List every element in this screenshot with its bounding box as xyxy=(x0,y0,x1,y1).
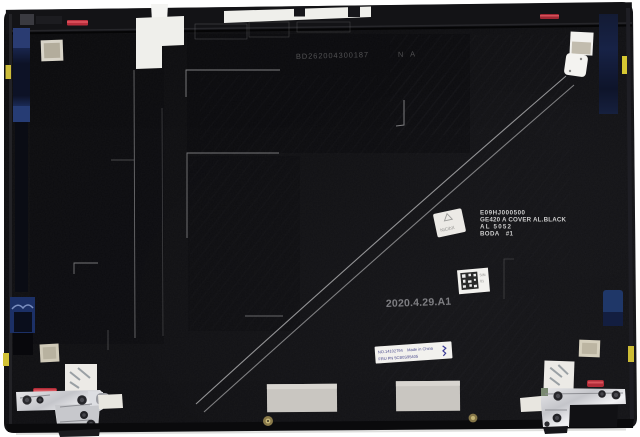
svg-text:E09HJ000500: E09HJ000500 xyxy=(480,210,526,217)
svg-text:2020.4.29.A1: 2020.4.29.A1 xyxy=(386,296,452,310)
svg-text:BODA #1: BODA #1 xyxy=(480,231,514,238)
svg-text:01: 01 xyxy=(480,279,484,283)
svg-text:N A: N A xyxy=(398,49,418,59)
svg-text:BD262004300187: BD262004300187 xyxy=(296,50,369,61)
svg-text:GE420 A COVER AL.BLACK: GE420 A COVER AL.BLACK xyxy=(480,217,567,224)
svg-text:S/N: S/N xyxy=(479,273,486,278)
svg-text:AL 5052: AL 5052 xyxy=(480,224,512,231)
